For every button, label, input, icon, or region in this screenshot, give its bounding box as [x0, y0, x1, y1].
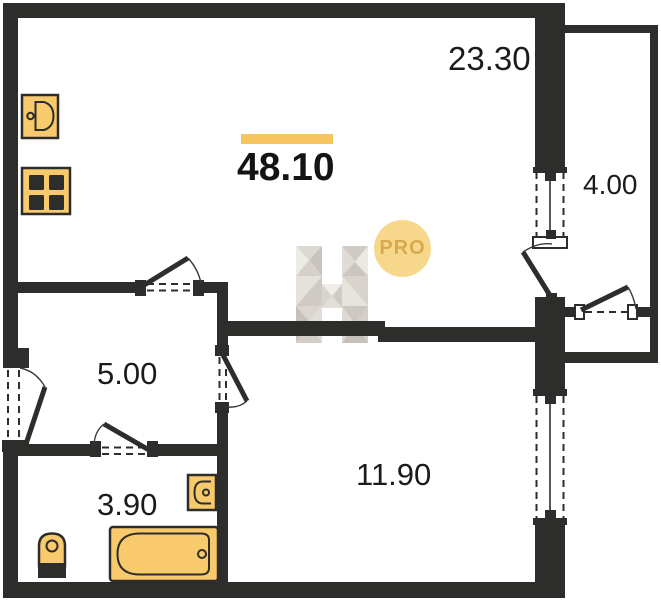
kitchen-sink-icon — [22, 95, 58, 138]
entrance-door — [2, 368, 45, 452]
wall-right-middle — [535, 297, 565, 396]
door-living-loggia — [523, 244, 557, 302]
window-living-loggia — [533, 167, 567, 248]
wall-top — [3, 3, 565, 18]
wall-left-upper — [3, 3, 18, 368]
wall-hall-top-right — [204, 282, 228, 293]
door-hall-bathroom — [90, 424, 158, 457]
wall-entrance-pier — [3, 348, 29, 368]
total-area-accent-bar — [241, 134, 333, 144]
area-label-bathroom: 3.90 — [97, 489, 157, 520]
pro-badge: PRO — [374, 220, 431, 277]
wall-bath-top-right — [158, 444, 217, 456]
wall-right-upper — [535, 14, 565, 172]
door-hall-bedroom — [215, 345, 247, 413]
floor-plan: 23.30 4.00 5.00 3.90 11.90 48.10 PRO — [0, 0, 661, 600]
wall-bedroom-top-b — [378, 327, 535, 342]
washbasin-icon — [188, 475, 216, 510]
wall-loggia-bottom — [563, 352, 658, 363]
wall-hall-right-upper — [217, 293, 228, 346]
total-area-label: 48.10 — [237, 148, 335, 187]
wall-hall-top-left — [18, 282, 136, 293]
bathtub-icon — [110, 527, 218, 581]
wall-loggia-top — [565, 25, 658, 33]
wall-left-lower — [3, 448, 18, 598]
wall-loggia-right — [650, 25, 658, 363]
toilet-icon — [38, 534, 66, 579]
stove-icon — [22, 168, 70, 214]
area-label-bedroom: 11.90 — [356, 459, 431, 490]
area-label-loggia: 4.00 — [583, 171, 638, 199]
door-kitchen-hall — [135, 258, 204, 296]
wall-bedroom-top-a — [228, 321, 385, 336]
window-bedroom — [533, 389, 567, 525]
wall-bottom — [3, 582, 565, 598]
pro-badge-label: PRO — [379, 237, 425, 260]
door-loggia-lower — [565, 287, 650, 319]
area-label-hallway: 5.00 — [97, 358, 157, 389]
wall-right-lower — [535, 519, 565, 582]
area-label-living-kitchen: 23.30 — [448, 42, 531, 75]
